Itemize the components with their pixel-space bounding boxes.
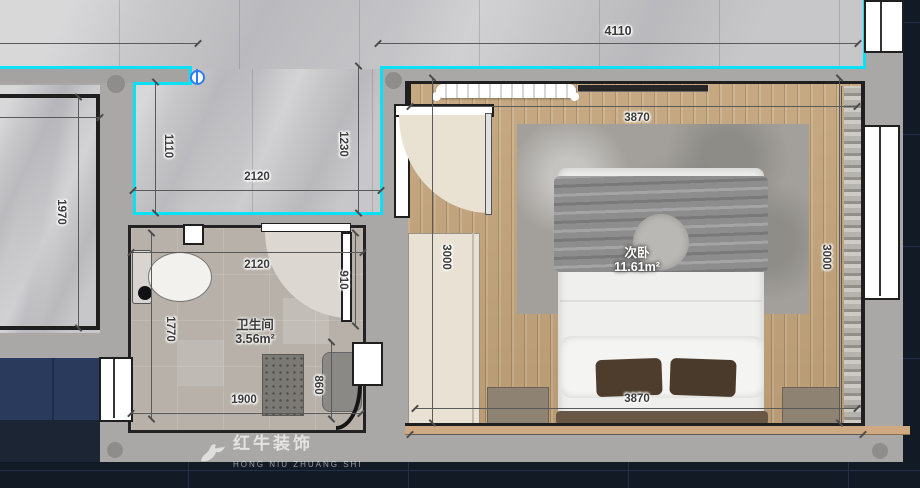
left-room-wall-bottom	[0, 326, 100, 330]
dim-label-3000-right: 3000	[820, 244, 832, 270]
dim-line-860	[331, 342, 332, 419]
dim-label-2120-hall: 2120	[244, 171, 270, 183]
floor-drain-icon	[138, 286, 152, 300]
dim-label-860: 860	[312, 375, 324, 394]
dim-line-1110	[155, 82, 156, 213]
dim-label-1230: 1230	[337, 131, 349, 157]
curtain	[844, 86, 862, 424]
exterior-block-seam	[52, 358, 54, 420]
dim-line-3000-right	[839, 78, 840, 423]
window-bathroom-mullion	[113, 359, 115, 418]
duct-shaft	[352, 342, 383, 386]
hanger-end-knob	[432, 92, 441, 101]
dim-label-3000-left: 3000	[440, 244, 452, 270]
left-room-wall-top	[0, 94, 100, 98]
bedroom-name: 次卧	[624, 246, 649, 260]
dim-line-left-room-top	[0, 117, 100, 118]
dim-label-3870-top: 3870	[624, 112, 650, 124]
dim-line-left-room	[78, 97, 79, 328]
exterior-block-light	[0, 358, 100, 420]
dim-line-1770	[151, 233, 152, 419]
bathroom-tile-highlight	[178, 340, 224, 386]
column-dot	[107, 442, 123, 458]
marble-floor-top-strip	[0, 0, 864, 69]
dim-line-2120-bath	[131, 252, 363, 253]
window-top-right	[864, 0, 904, 53]
bull-logo-icon	[198, 440, 228, 469]
bedroom-area: 11.61m²	[614, 260, 660, 274]
bathroom-label: 卫生间 3.56m²	[235, 318, 275, 346]
window-bathroom-left	[99, 357, 133, 422]
bedroom-label: 次卧 11.61m²	[614, 246, 660, 274]
dim-label-1900: 1900	[231, 394, 257, 406]
cyan-wall-line	[133, 82, 136, 215]
left-room-floor	[0, 85, 100, 333]
cyan-wall-line	[380, 68, 383, 215]
cyan-wall-line	[380, 66, 866, 69]
dim-label-2120-bath: 2120	[244, 259, 270, 271]
bed-brown-pillow-right	[669, 358, 736, 397]
left-room-wall-right	[96, 94, 100, 330]
window-right	[863, 125, 900, 300]
bedroom-door-leaf	[485, 113, 492, 215]
dim-line-2120-hall	[133, 190, 381, 191]
column-dot	[872, 443, 888, 459]
bed-brown-pillow-left	[595, 358, 662, 397]
wall-band-top	[0, 69, 190, 83]
cyan-wall-line	[133, 212, 383, 215]
dim-line-3000-left	[432, 78, 433, 423]
watermark: 红牛装饰 HONG NIU ZHUANG SHI	[198, 436, 363, 472]
watermark-brand: 红牛装饰	[233, 434, 313, 453]
tv-bar	[578, 85, 708, 92]
bathroom-niche	[183, 224, 204, 245]
cyan-wall-line	[0, 66, 192, 69]
curtain-track	[841, 86, 842, 424]
dim-line-4110	[378, 43, 858, 44]
toilet-bowl-icon	[148, 252, 212, 302]
shower-drain-grid	[262, 354, 304, 416]
dim-label-910: 910	[337, 270, 349, 289]
window-right-mullion	[879, 127, 881, 296]
wardrobe-edge	[472, 233, 474, 423]
cyan-wall-line	[133, 82, 192, 85]
dim-label-4110: 4110	[604, 24, 631, 38]
dim-label-1770: 1770	[164, 316, 176, 342]
exterior-block-dark	[0, 420, 100, 462]
window-top-right-mullion	[880, 2, 882, 51]
plumbing-cap-pin	[196, 69, 198, 84]
dim-label-1110: 1110	[162, 134, 174, 158]
column-dot	[107, 75, 125, 93]
watermark-subtext: HONG NIU ZHUANG SHI	[233, 460, 363, 469]
dim-line-top-left	[0, 43, 198, 44]
column-dot	[385, 72, 402, 89]
dim-line-3870-top	[410, 106, 857, 107]
closet-hangers	[436, 84, 576, 98]
dim-line-1900	[131, 413, 361, 414]
bed-duvet-fold	[560, 300, 762, 302]
bathroom-name: 卫生间	[236, 318, 274, 332]
floor-plan-canvas: 1970 1110 1230 2120	[0, 0, 920, 488]
bathroom-area: 3.56m²	[235, 332, 275, 346]
dim-line-3870-bottom	[415, 408, 857, 409]
dim-label-3870-bottom: 3870	[624, 393, 650, 405]
dim-line-910	[355, 233, 356, 326]
bathroom-door-opening	[261, 223, 351, 232]
hanger-end-knob	[570, 92, 579, 101]
dim-label-left-room: 1970	[55, 199, 67, 225]
dim-line-bedroom-outer	[410, 434, 863, 435]
